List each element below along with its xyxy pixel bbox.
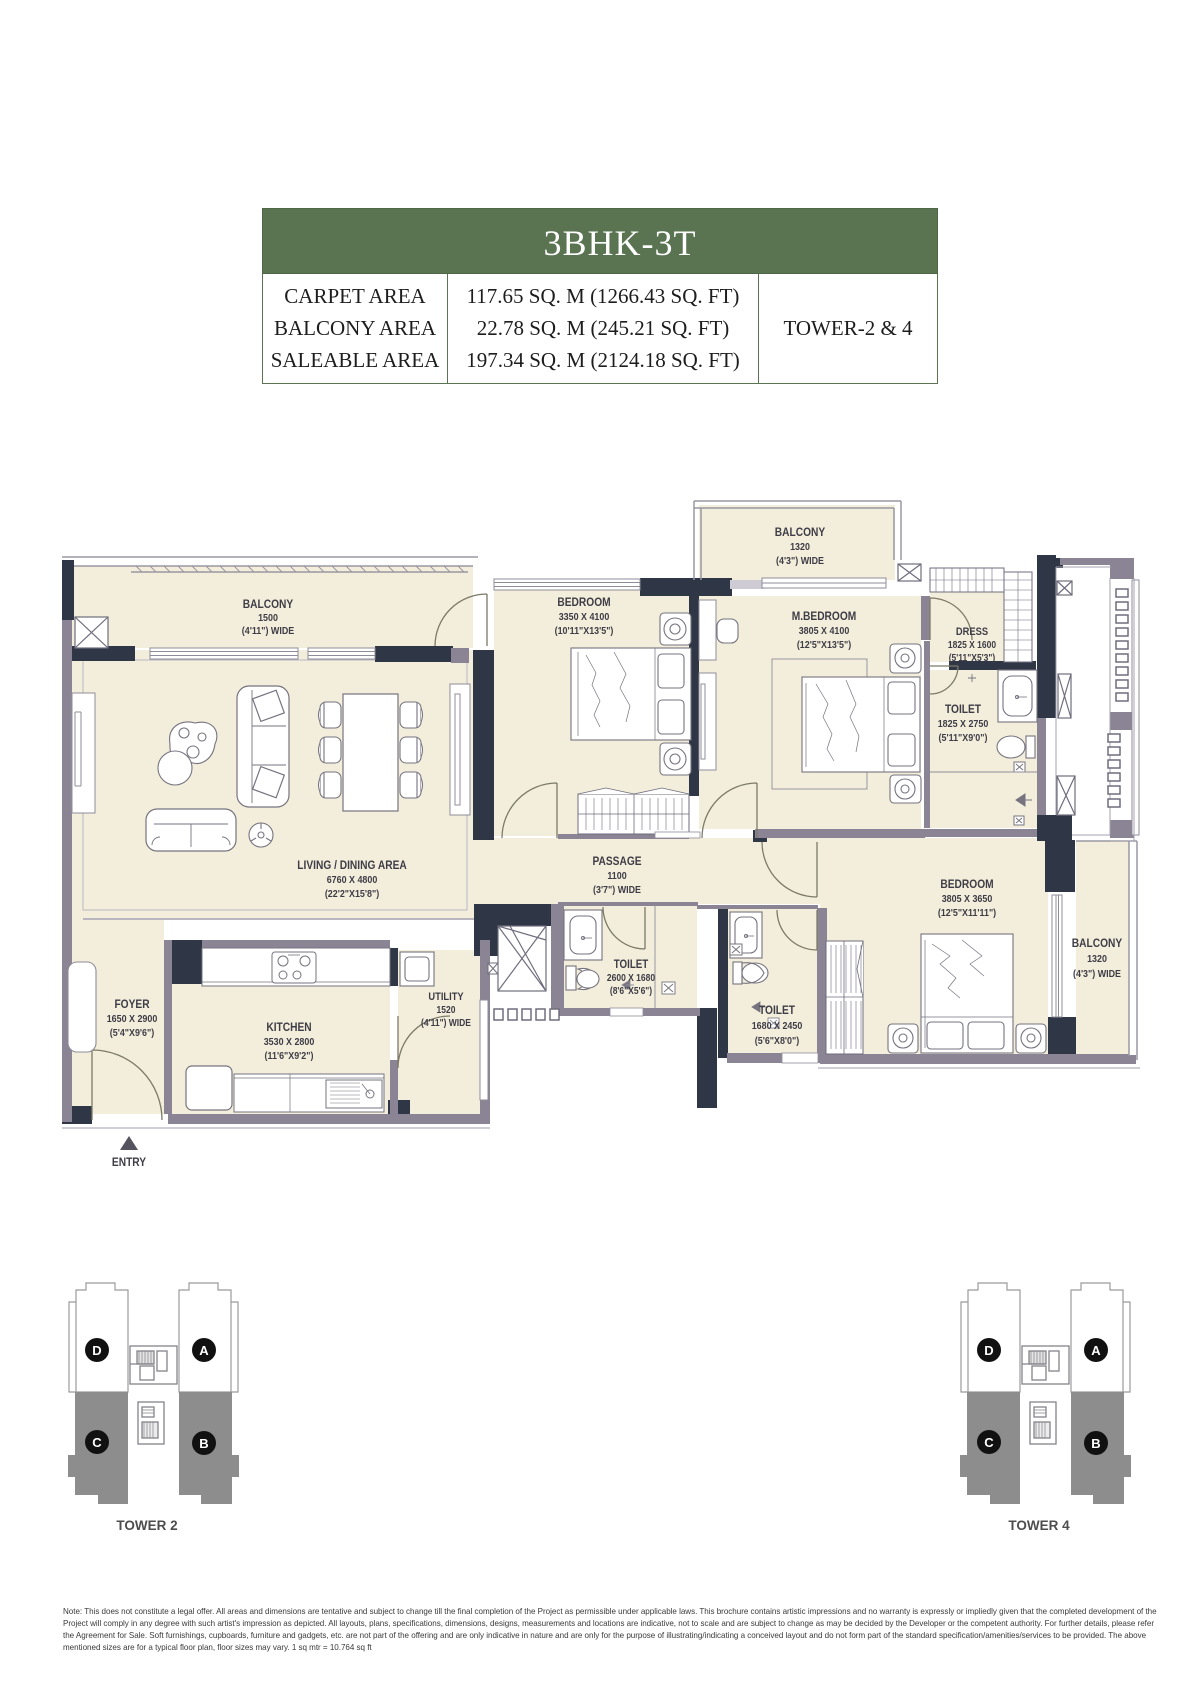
svg-text:BALCONY: BALCONY <box>775 526 826 539</box>
svg-text:2600 X 1680: 2600 X 1680 <box>607 972 655 983</box>
svg-text:C: C <box>92 1435 102 1450</box>
svg-text:(11'6"X9'2"): (11'6"X9'2") <box>265 1050 314 1062</box>
svg-text:TOILET: TOILET <box>945 703 981 716</box>
svg-text:(5'11"X5'3"): (5'11"X5'3") <box>949 652 996 663</box>
svg-text:3530 X 2800: 3530 X 2800 <box>264 1036 315 1048</box>
svg-text:(4'11") WIDE: (4'11") WIDE <box>421 1017 471 1028</box>
svg-text:(5'4"X9'6"): (5'4"X9'6") <box>110 1027 154 1039</box>
svg-text:(4'11") WIDE: (4'11") WIDE <box>242 625 295 637</box>
svg-text:1825 X 1600: 1825 X 1600 <box>948 639 996 650</box>
svg-text:(10'11"X13'5"): (10'11"X13'5") <box>555 625 614 637</box>
svg-text:A: A <box>199 1343 209 1358</box>
svg-text:TOILET: TOILET <box>759 1004 795 1017</box>
svg-text:(5'6"X8'0"): (5'6"X8'0") <box>755 1035 799 1047</box>
svg-text:1100: 1100 <box>607 870 627 882</box>
svg-text:D: D <box>92 1343 101 1358</box>
svg-text:1520: 1520 <box>437 1004 456 1015</box>
svg-text:3805 X 4100: 3805 X 4100 <box>799 625 850 637</box>
svg-text:DRESS: DRESS <box>956 626 988 638</box>
svg-text:(3'7") WIDE: (3'7") WIDE <box>593 884 641 896</box>
svg-text:(8'6"X5'6"): (8'6"X5'6") <box>610 985 652 996</box>
svg-text:3805 X 3650: 3805 X 3650 <box>942 893 993 905</box>
svg-text:1320: 1320 <box>790 541 810 553</box>
svg-text:(12'5"X13'5"): (12'5"X13'5") <box>797 639 851 651</box>
svg-text:ENTRY: ENTRY <box>112 1156 147 1169</box>
svg-text:(12'5"X11'11"): (12'5"X11'11") <box>938 907 996 919</box>
svg-text:(5'11"X9'0"): (5'11"X9'0") <box>939 732 988 744</box>
svg-text:(22'2"X15'8"): (22'2"X15'8") <box>325 888 379 900</box>
svg-text:B: B <box>199 1436 208 1451</box>
svg-text:D: D <box>984 1343 993 1358</box>
svg-text:LIVING / DINING AREA: LIVING / DINING AREA <box>297 859 406 872</box>
svg-text:1650 X 2900: 1650 X 2900 <box>107 1013 158 1025</box>
svg-text:3350 X 4100: 3350 X 4100 <box>559 611 610 623</box>
svg-text:C: C <box>984 1435 994 1450</box>
svg-text:BEDROOM: BEDROOM <box>557 596 610 609</box>
svg-text:TOWER 4: TOWER 4 <box>1008 1518 1070 1533</box>
svg-text:UTILITY: UTILITY <box>428 991 463 1003</box>
svg-text:BALCONY: BALCONY <box>1072 937 1123 950</box>
svg-text:6760 X 4800: 6760 X 4800 <box>327 874 378 886</box>
svg-text:1825 X 2750: 1825 X 2750 <box>938 718 989 730</box>
svg-text:BEDROOM: BEDROOM <box>940 878 993 891</box>
svg-text:BALCONY: BALCONY <box>243 598 294 611</box>
svg-text:1680 X 2450: 1680 X 2450 <box>752 1020 803 1032</box>
svg-text:A: A <box>1091 1343 1101 1358</box>
svg-text:TOWER 2: TOWER 2 <box>116 1518 177 1533</box>
svg-text:M.BEDROOM: M.BEDROOM <box>792 610 857 623</box>
svg-text:FOYER: FOYER <box>114 998 149 1011</box>
svg-text:1320: 1320 <box>1087 953 1107 965</box>
svg-text:1500: 1500 <box>258 612 278 624</box>
svg-text:PASSAGE: PASSAGE <box>592 855 641 868</box>
svg-text:(4'3") WIDE: (4'3") WIDE <box>1073 968 1121 980</box>
svg-text:B: B <box>1091 1436 1100 1451</box>
svg-text:KITCHEN: KITCHEN <box>266 1021 311 1034</box>
svg-text:TOILET: TOILET <box>614 958 649 971</box>
svg-text:(4'3") WIDE: (4'3") WIDE <box>776 555 824 567</box>
